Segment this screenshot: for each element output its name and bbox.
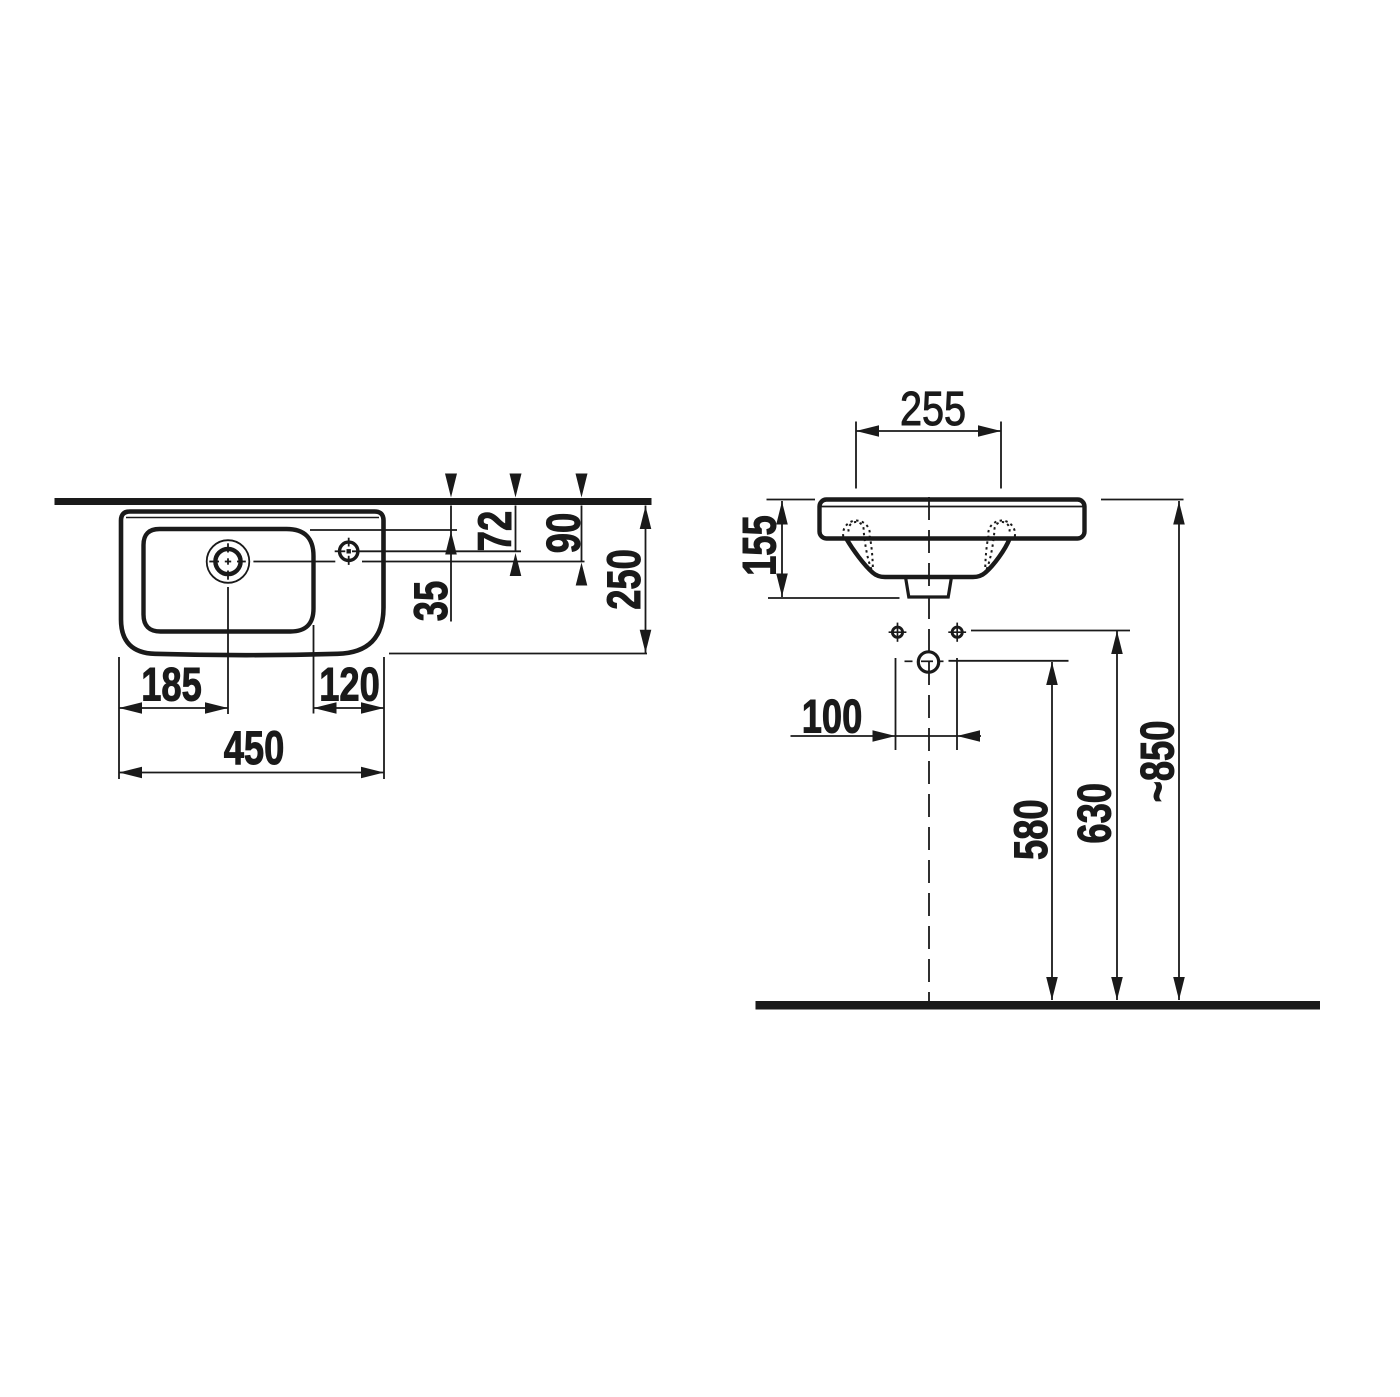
svg-text:250: 250 <box>597 549 650 610</box>
svg-text:~850: ~850 <box>1131 721 1184 803</box>
svg-text:580: 580 <box>1004 799 1057 860</box>
svg-text:100: 100 <box>802 690 863 743</box>
svg-text:255: 255 <box>900 382 966 435</box>
svg-text:72: 72 <box>468 511 521 551</box>
svg-text:90: 90 <box>537 513 590 553</box>
svg-text:185: 185 <box>141 658 202 711</box>
svg-text:120: 120 <box>319 658 380 711</box>
svg-text:35: 35 <box>404 581 457 621</box>
svg-text:155: 155 <box>733 515 786 576</box>
svg-text:630: 630 <box>1068 783 1121 844</box>
svg-text:450: 450 <box>224 721 285 774</box>
